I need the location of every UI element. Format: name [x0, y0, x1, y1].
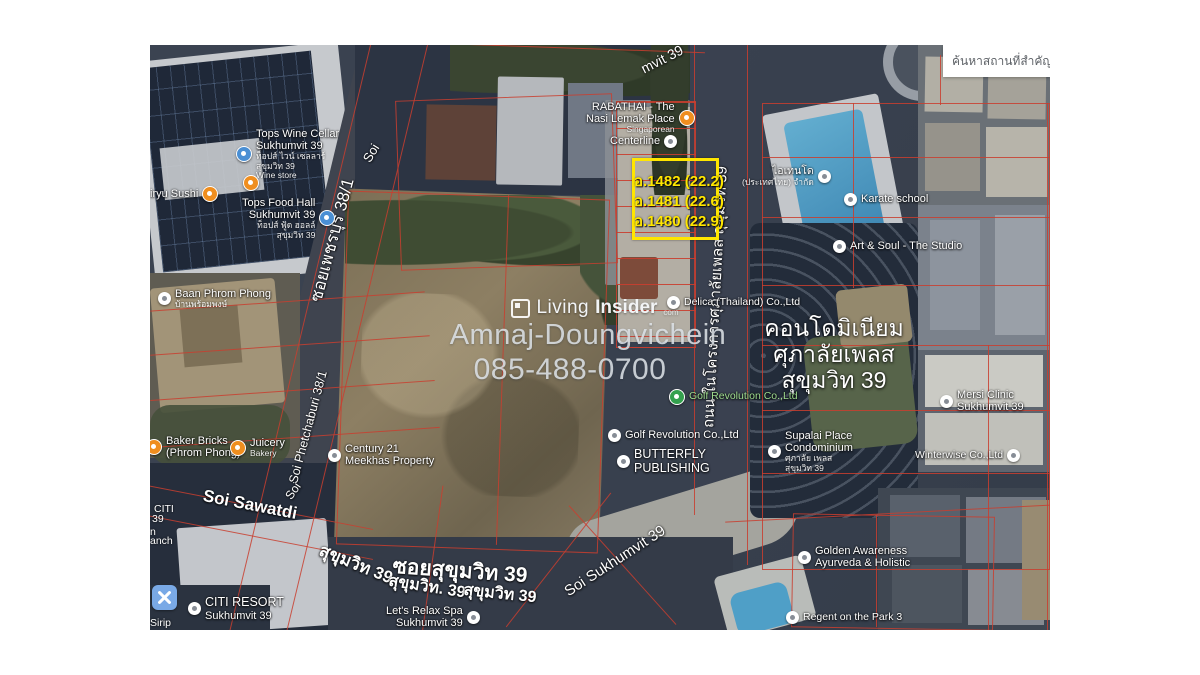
parcel-boundary-line	[762, 217, 1050, 218]
clipped-label-fragment: 39	[152, 513, 164, 525]
place-pin-icon	[768, 445, 781, 458]
place-pin-icon	[1007, 449, 1020, 462]
poi-label: CITI RESORT	[205, 596, 284, 610]
poi-karate-school[interactable]: Karate school	[844, 193, 928, 206]
poi-butterfly-publishing[interactable]: BUTTERFLY PUBLISHING	[617, 448, 710, 476]
poi-sublabel: สุขุมวิท 39	[785, 464, 853, 473]
poi-label: BUTTERFLY	[634, 448, 710, 462]
poi-label: iryu Sushi	[150, 188, 198, 200]
place-pin-icon	[664, 135, 677, 148]
bakery-pin-icon	[230, 440, 246, 456]
poi-sublabel: Bakery	[250, 449, 285, 458]
poi-label: Golden Awareness	[815, 545, 910, 557]
poi-sublabel: Wine store	[256, 171, 339, 180]
place-pin-icon	[188, 602, 201, 615]
place-pin-icon	[158, 292, 171, 305]
restaurant-pin-icon	[202, 186, 218, 202]
place-pin-icon	[940, 395, 953, 408]
poi-tops-food-hall[interactable]: Tops Food Hall Sukhumvit 39 ท็อปส์ ฟู้ด …	[242, 197, 335, 240]
poi-label: Mersi Clinic	[957, 389, 1024, 401]
poi-sublabel: บ้านพร้อมพงษ์	[175, 300, 271, 309]
poi-art-and-soul[interactable]: Art & Soul - The Studio	[833, 240, 962, 253]
condo-name-line: ศุภาลัยเพลส	[758, 341, 910, 367]
poi-lets-relax-spa[interactable]: Let's Relax Spa Sukhumvit 39	[386, 605, 480, 629]
poi-golf-revolution-green[interactable]: Golf Revolution Co.,Ltd	[669, 389, 798, 405]
poi-sublabel: (ประเทศไทย) จำกัด	[742, 178, 814, 187]
poi-label: Sukhumvit 39	[957, 401, 1024, 413]
place-pin-icon	[786, 611, 799, 624]
place-pin-icon	[467, 611, 480, 624]
poi-sublabel: สุขุมวิท 39	[277, 231, 316, 240]
poi-baan-phrom-phong[interactable]: Baan Phrom Phong บ้านพร้อมพงษ์	[158, 288, 271, 309]
parcel-boundary-line	[762, 157, 1050, 158]
poi-juicery-bakery[interactable]: Juicery Bakery	[230, 437, 285, 458]
poi-baker-bricks[interactable]: Baker Bricks (Phrom Phong)	[150, 435, 241, 459]
poi-label: Karate school	[861, 193, 928, 205]
watermark-owner: Amnaj-Doungvichein	[418, 319, 758, 352]
poi-winterwise[interactable]: Winterwise Co.,Ltd	[915, 449, 1020, 462]
restaurant-pin-icon	[679, 110, 695, 126]
shopping-cart-pin-icon	[319, 210, 335, 226]
poi-label: Ayurveda & Holistic	[815, 557, 910, 569]
poi-century21[interactable]: Century 21 Meekhas Property	[328, 443, 434, 467]
poi-label: ไอเทนโด	[772, 166, 814, 178]
poi-label: Let's Relax Spa	[386, 605, 463, 617]
clipped-label-fragment: anch	[150, 535, 173, 547]
condo-name-line: คอนโดมิเนียม	[758, 315, 910, 341]
poi-label: Golf Revolution Co.,Ltd	[625, 429, 739, 441]
poi-label: Sukhumvit 39	[205, 610, 284, 622]
poi-kiryu-sushi[interactable]: iryu Sushi	[150, 186, 218, 202]
restaurant-pin-icon	[243, 175, 259, 191]
poi-rabathai[interactable]: RABATHAI - The Nasi Lemak Place Singapor…	[586, 101, 695, 135]
courtyard-dark	[180, 305, 243, 368]
poi-label: Tops Wine Cellar	[256, 128, 339, 140]
poi-label: Century 21	[345, 443, 434, 455]
parcel-boundary-line	[762, 285, 1050, 286]
poi-tops-wine-cellar[interactable]: Tops Wine Cellar Sukhumvit 39 ท็อปส์ ไวน…	[236, 128, 339, 180]
poi-label: Tops Food Hall	[242, 197, 315, 209]
poi-itendo[interactable]: ไอเทนโด (ประเทศไทย) จำกัด	[742, 166, 831, 187]
poi-label: Art & Soul - The Studio	[850, 240, 962, 252]
parcel-boundary-box	[395, 93, 618, 270]
poi-label: Golf Revolution Co.,Ltd	[689, 391, 798, 403]
poi-label: Centerline	[610, 135, 660, 147]
poi-restaurant-pin[interactable]	[243, 175, 259, 191]
watermark-brand-first: Living	[536, 297, 589, 319]
poi-label: RABATHAI - The	[592, 101, 675, 113]
plot-label: อ.1480 (22.9)	[634, 209, 744, 233]
poi-regent-on-the-park[interactable]: Regent on the Park 3	[786, 611, 902, 624]
poi-label: Sukhumvit 39	[396, 617, 463, 629]
place-pin-icon	[328, 449, 341, 462]
watermark-phone: 085-488-0700	[410, 353, 730, 387]
golf-pin-icon	[669, 389, 685, 405]
search-box[interactable]: ค้นหาสถานที่สำคัญ	[943, 45, 1050, 77]
poi-label: Meekhas Property	[345, 455, 434, 467]
poi-citi-resort[interactable]: CITI RESORT Sukhumvit 39	[188, 596, 284, 622]
clipped-label-fragment: Sirip	[150, 617, 171, 629]
parcel-boundary-line	[1047, 103, 1048, 630]
poi-label: Winterwise Co.,Ltd	[915, 450, 1003, 462]
place-pin-icon	[608, 429, 621, 442]
spa-category-icon	[152, 585, 177, 610]
watermark-logo: Living Insider com	[480, 297, 710, 319]
page: { "search_box": { "text": "ค้นหาสถานที่ส…	[0, 0, 1200, 675]
poi-mersi-clinic[interactable]: Mersi Clinic Sukhumvit 39	[940, 389, 1024, 413]
bakery-pin-icon	[150, 439, 162, 455]
parcel-boundary-line	[762, 473, 1050, 474]
place-pin-icon	[818, 170, 831, 183]
poi-sublabel: Singaporean	[626, 125, 674, 134]
poi-supalai-place[interactable]: Supalai Place Condominium ศุภาลัย เพลส ส…	[768, 430, 853, 473]
poi-label: PUBLISHING	[634, 462, 710, 476]
poi-centerline[interactable]: Centerline	[610, 135, 677, 148]
poi-label: Supalai Place	[785, 430, 853, 442]
search-box-text: ค้นหาสถานที่สำคัญ	[952, 52, 1050, 71]
satellite-map[interactable]: ซอยเพชรบุรี 38/1 Soi Phetchaburi 38/1 So…	[150, 45, 1050, 630]
watermark-brand-suffix: com	[663, 308, 678, 317]
living-insider-logo-icon	[511, 299, 530, 318]
place-pin-icon	[798, 551, 811, 564]
condo-name-overlay: คอนโดมิเนียม ศุภาลัยเพลส สุขุมวิท 39	[758, 315, 910, 393]
poi-golden-awareness[interactable]: Golden Awareness Ayurveda & Holistic	[798, 545, 910, 569]
watermark-brand-second: Insider	[595, 297, 657, 319]
parcel-boundary-line	[940, 55, 941, 105]
place-pin-icon	[833, 240, 846, 253]
place-pin-icon	[617, 455, 630, 468]
wine-store-pin-icon	[236, 146, 252, 162]
poi-label: Regent on the Park 3	[803, 612, 902, 624]
place-pin-icon	[844, 193, 857, 206]
poi-golf-revolution-white[interactable]: Golf Revolution Co.,Ltd	[608, 429, 739, 442]
